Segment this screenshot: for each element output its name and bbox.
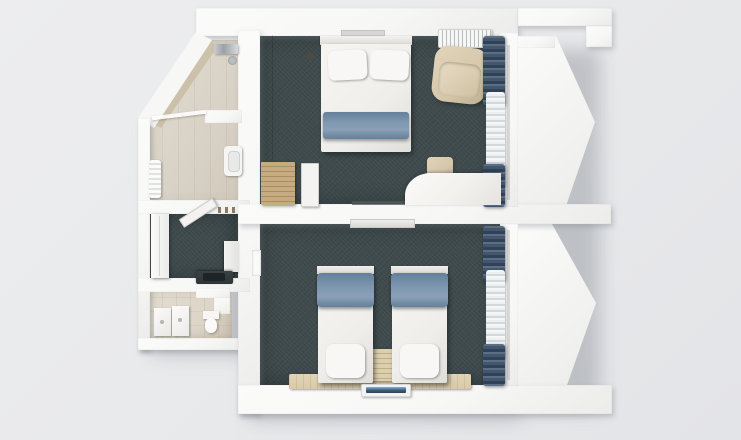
wall-wc-partition-h <box>196 288 230 298</box>
coat-hooks <box>218 207 238 213</box>
luggage-bench <box>261 162 295 205</box>
wardrobe-seam <box>272 35 273 160</box>
wall-tv-screen <box>366 387 406 393</box>
shower-fixture <box>214 44 238 54</box>
door-seam-hall-bedroom2 <box>252 250 261 276</box>
vanity-handle <box>178 318 182 322</box>
bed-pillow <box>400 344 439 378</box>
towel-radiator <box>149 160 161 198</box>
hall-closet <box>151 214 169 278</box>
desk <box>405 173 501 205</box>
bed-pillow <box>327 49 368 81</box>
wall-tv <box>361 384 411 397</box>
bed-runner-blue <box>317 273 374 307</box>
window-glass-line-bottom <box>507 230 510 380</box>
nightstand-lamp <box>306 52 314 60</box>
armchair <box>430 44 490 105</box>
bed-pillow <box>326 344 365 378</box>
wall-wing-bottom <box>138 338 248 350</box>
balcony-parapet <box>515 224 597 389</box>
wall-top-right-return <box>586 26 612 47</box>
single-bed-left <box>317 266 374 383</box>
hall-closet-door-seam <box>159 216 160 276</box>
vanity-handle <box>160 320 164 324</box>
wall-middle-dividing <box>238 204 611 224</box>
wall-top-slab-right <box>518 8 612 26</box>
armchair-cushion <box>437 61 482 99</box>
shower-head <box>228 56 237 65</box>
wall-bottom <box>238 385 612 414</box>
hall-fridge-cabinet <box>224 241 239 272</box>
bed-runner-blue <box>391 273 448 307</box>
balcony-parapet <box>515 36 597 207</box>
wall-shower-stub <box>205 110 242 123</box>
washbasin-bowl <box>228 151 240 172</box>
bed-pillow <box>369 49 410 81</box>
window-glass-line-top <box>507 45 510 200</box>
wall-hall-bath2 <box>138 278 250 292</box>
door-threshold-bedroom2 <box>350 219 415 228</box>
toilet-bowl <box>205 318 217 333</box>
wall-left-wing <box>138 118 150 350</box>
bed-runner-blue <box>323 112 409 139</box>
wall-balcony1-top <box>515 36 555 48</box>
curtain-dark <box>483 344 505 386</box>
bedroom1-door-leaf <box>301 163 319 207</box>
floorplan-canvas <box>0 0 741 440</box>
door-groove-dividing-wall <box>352 201 412 205</box>
single-bed-right <box>391 266 448 383</box>
balcony-2 <box>515 224 597 389</box>
balcony-1 <box>515 36 597 207</box>
kitchenette-sink <box>203 273 225 281</box>
double-bed <box>320 36 412 152</box>
